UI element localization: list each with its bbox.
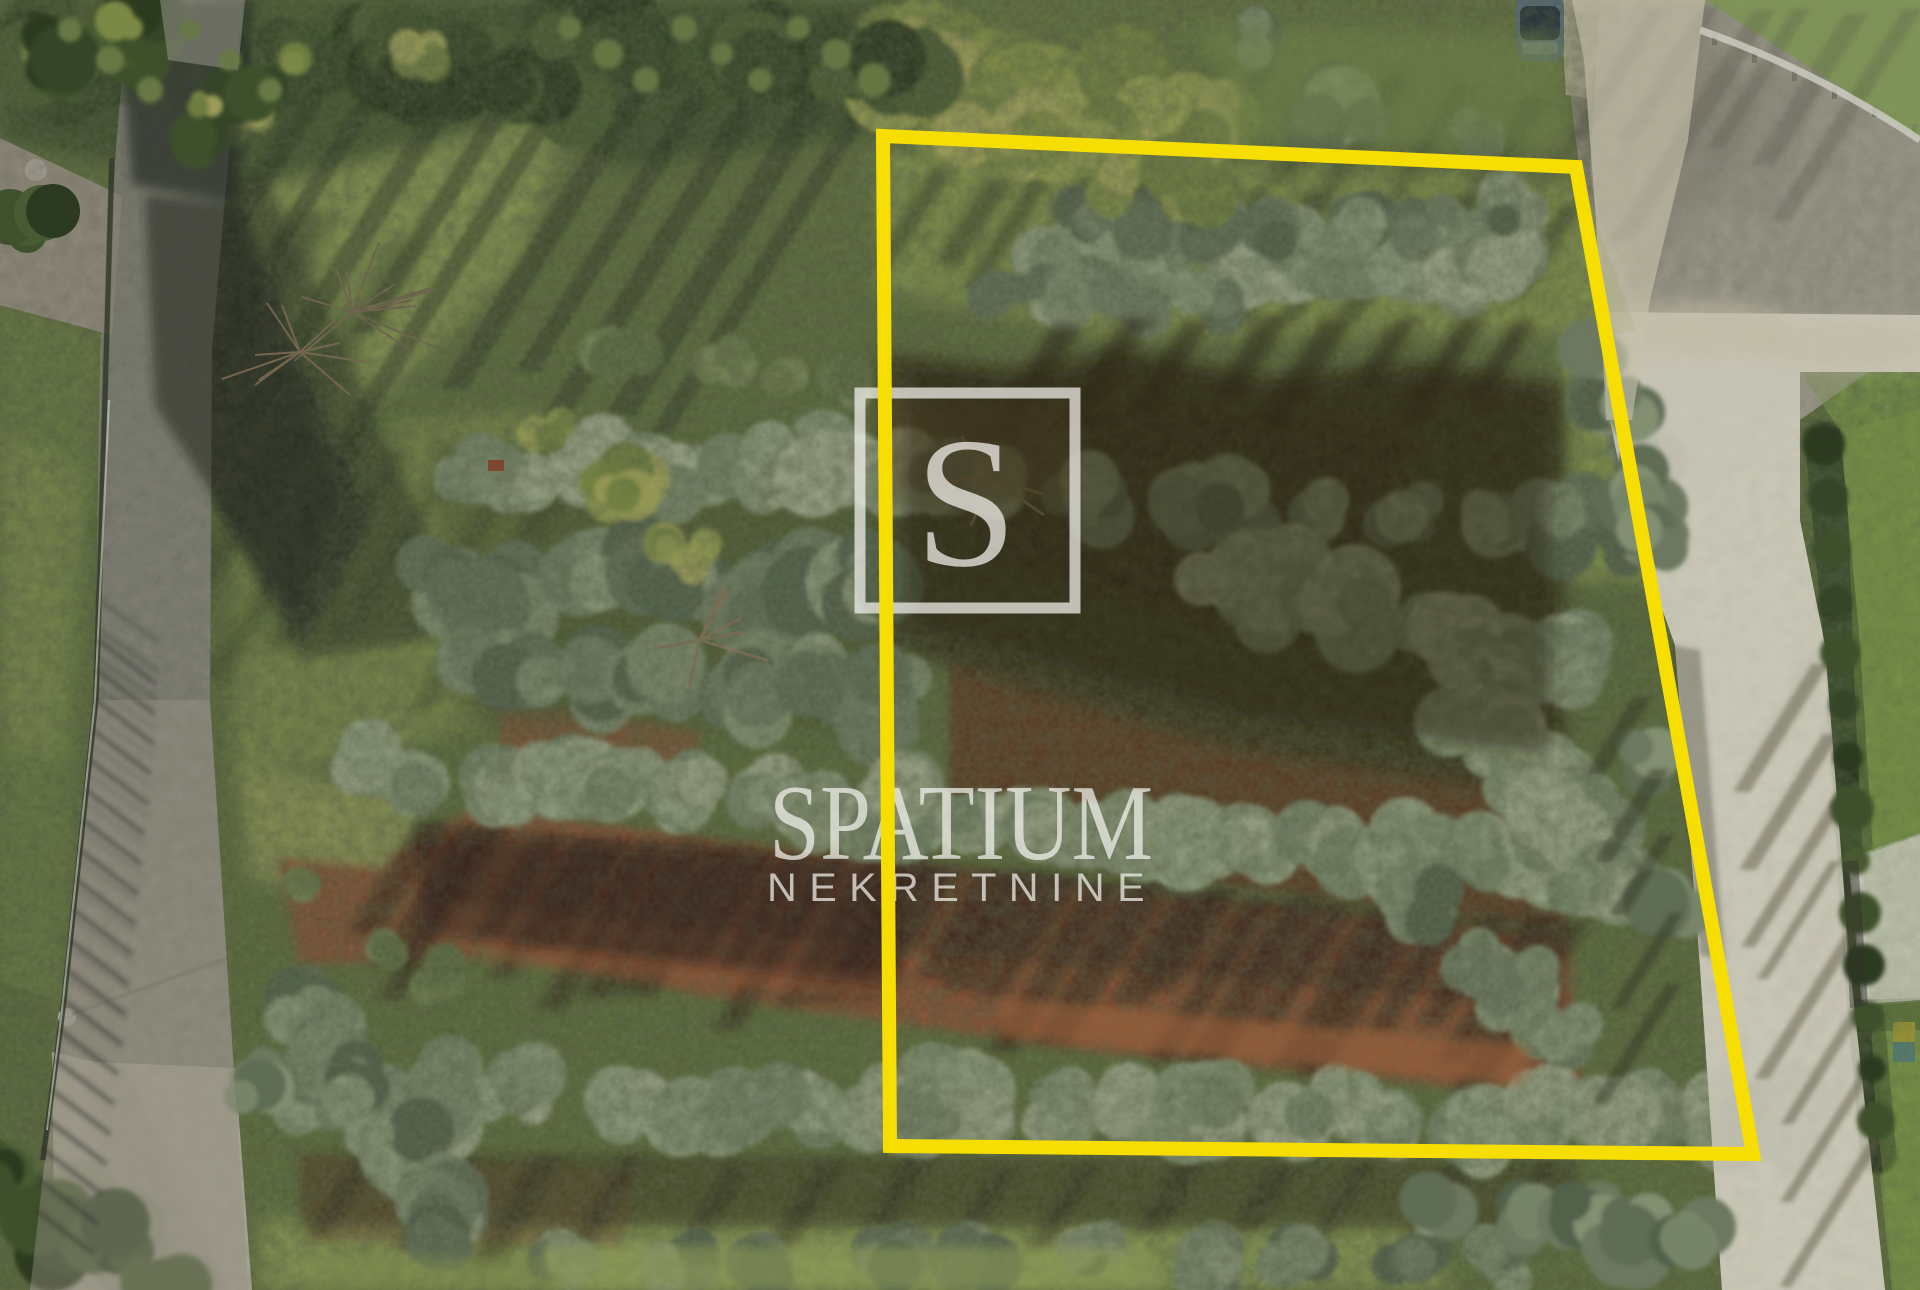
- svg-text:NEKRETNINE: NEKRETNINE: [767, 866, 1157, 910]
- svg-text:S: S: [915, 400, 1017, 606]
